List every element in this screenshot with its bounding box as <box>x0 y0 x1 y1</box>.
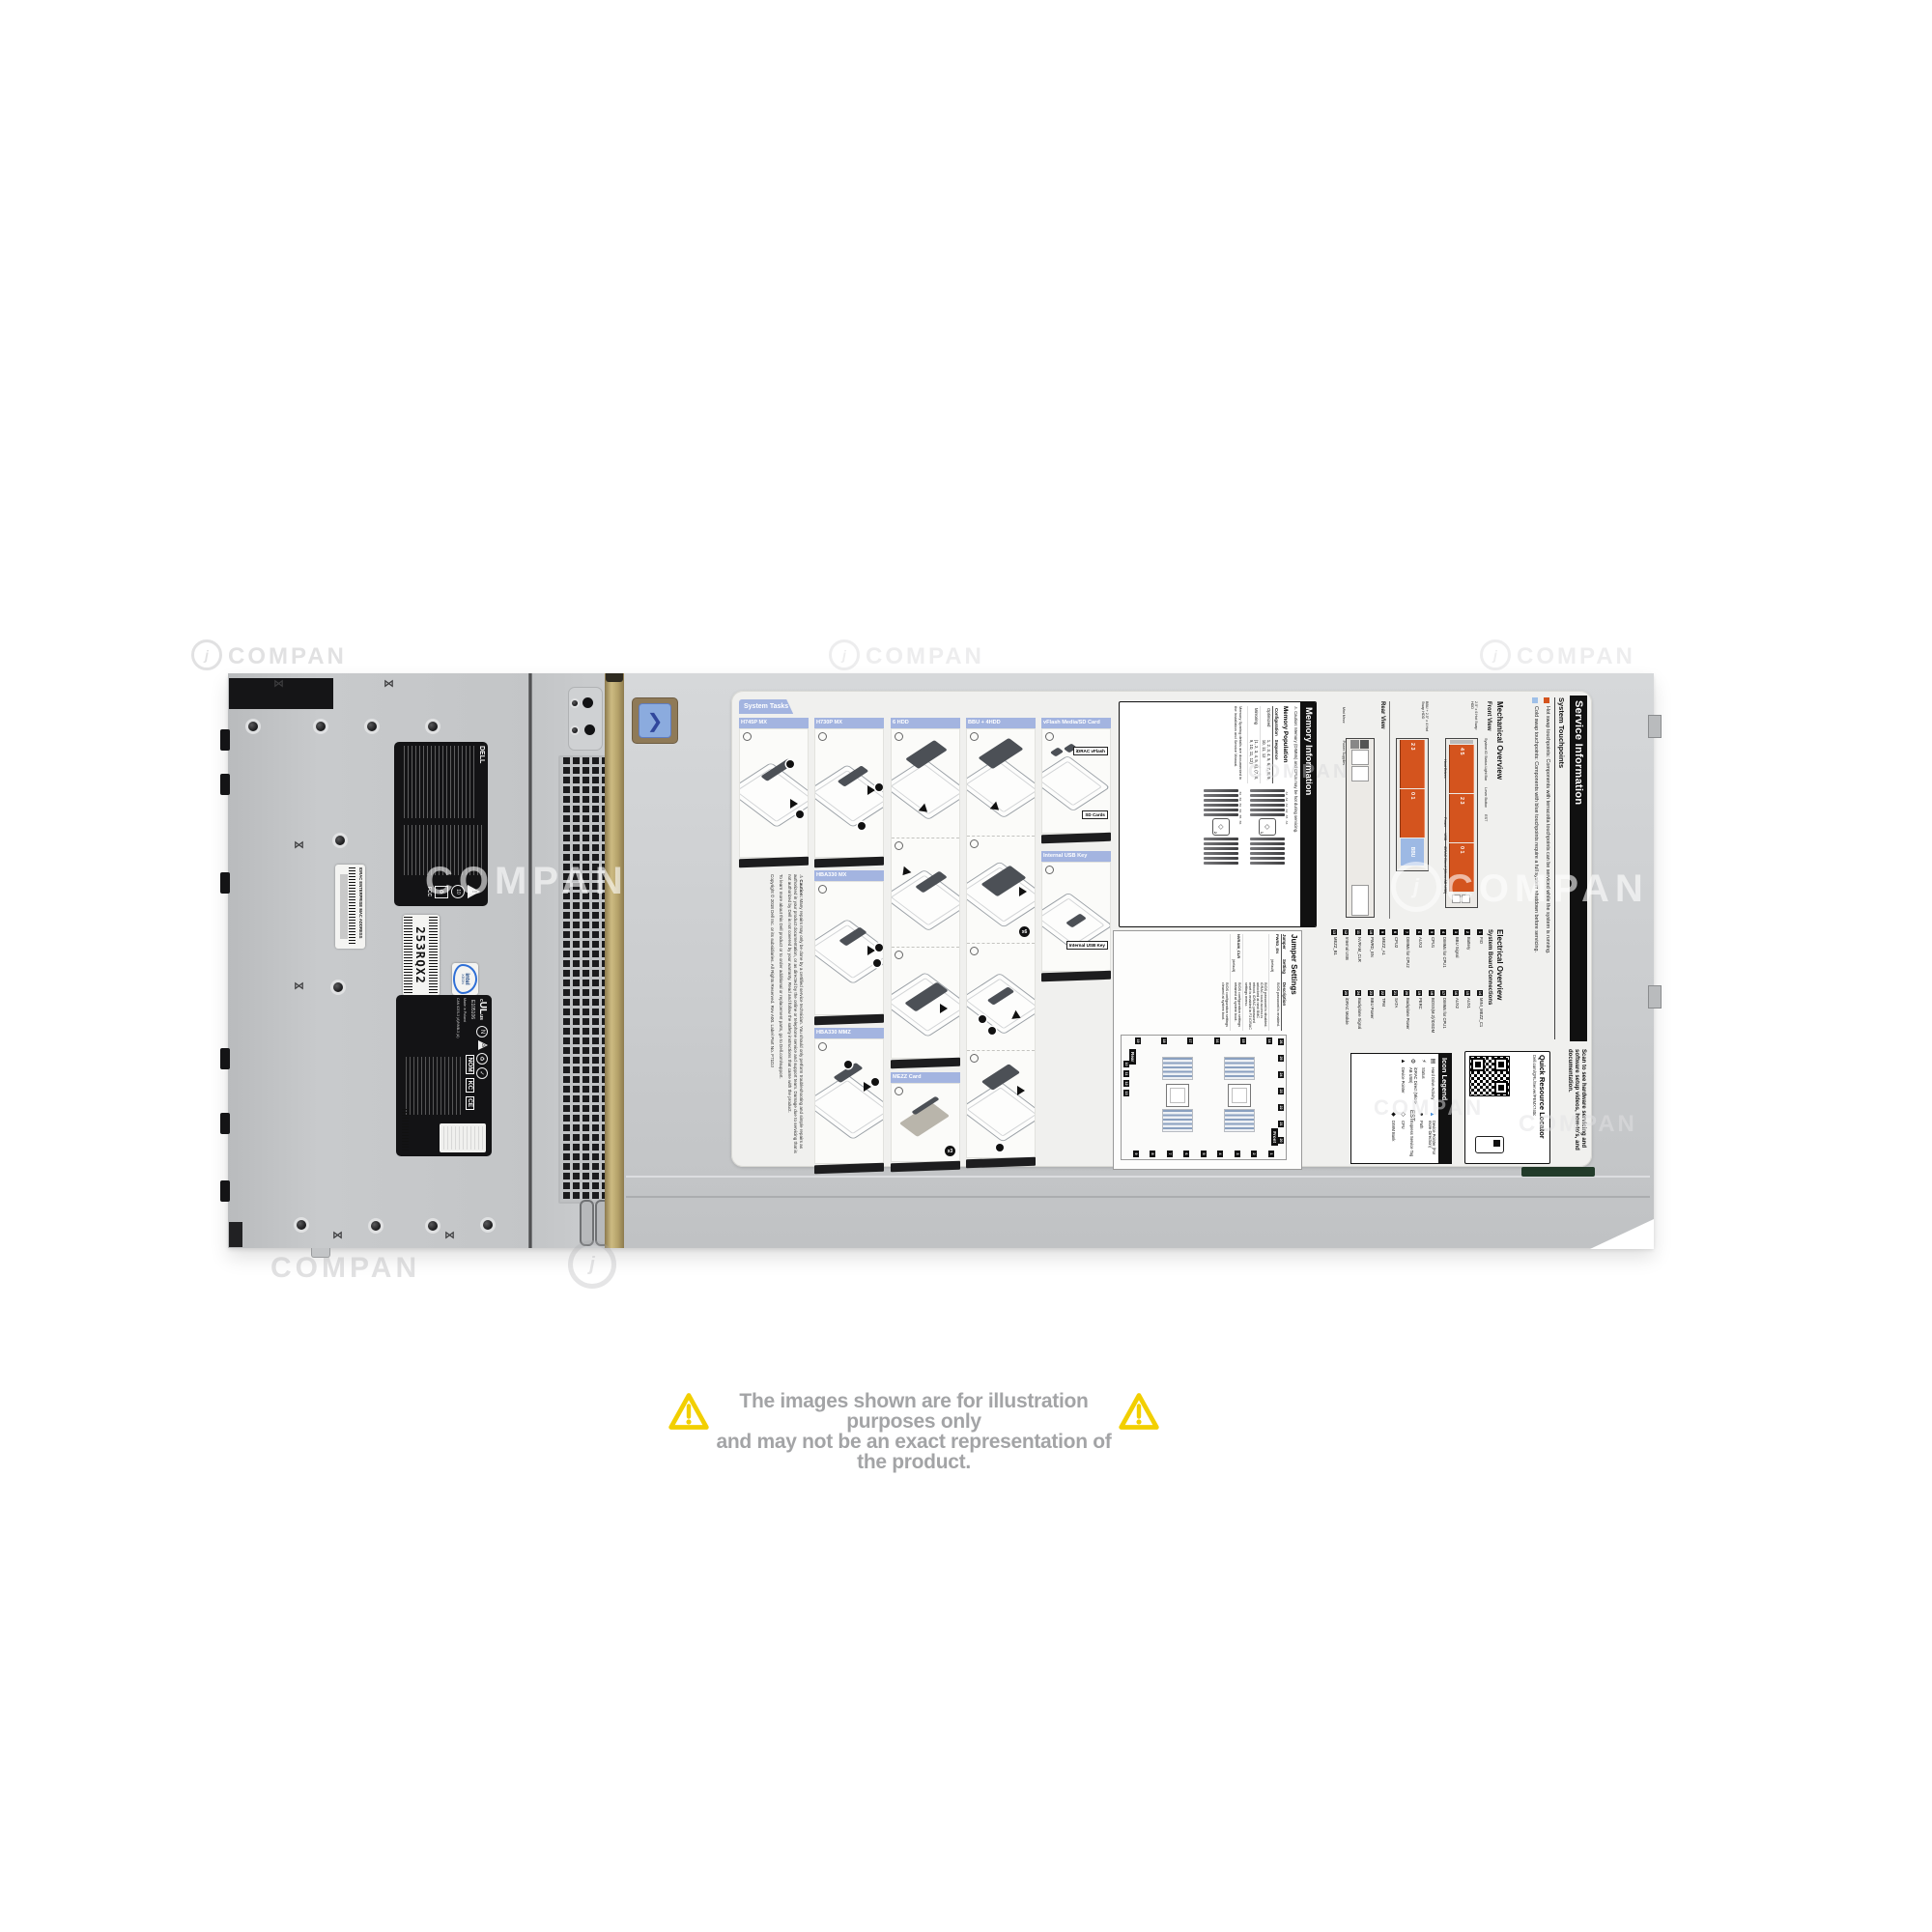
legend-icon: ● <box>1418 1110 1424 1119</box>
dimm-slot <box>1250 809 1285 811</box>
regulatory-label-1: DELL ! 10 ♻ FCC <box>394 742 488 906</box>
watermark-logo: j <box>191 639 222 670</box>
memory-information-section: Memory Information ⚠ Caution: Memory (DI… <box>1119 701 1317 927</box>
cert-circle-icon: ✓ <box>476 1067 488 1079</box>
connection-label: FIO <box>1479 937 1483 944</box>
stamped-vent-mark: ⋈ <box>384 679 394 689</box>
front-labels-mid: System ID Status Light BarLever ButtonES… <box>1484 738 1488 821</box>
drive-block: 0 1 <box>1449 843 1474 892</box>
emi-gasket-strip <box>605 673 624 1248</box>
col-jumper: Jumper <box>1282 934 1287 959</box>
warning-triangle-icon: ! <box>468 885 480 898</box>
dimm-slot-label: A4 <box>1285 809 1289 813</box>
memory-seq-mirroring: (1, 2, 3, 4, 5, 6), (7, 8, 9, 10, 11, 12… <box>1248 738 1261 783</box>
cover-groove <box>626 1196 1650 1198</box>
fcc-mark: FCC <box>426 887 432 896</box>
jumper-desc: BIOS password is enabled. <box>1270 982 1280 1031</box>
dimm-slot-label: B3 <box>1238 803 1242 808</box>
barcode <box>402 1109 409 1151</box>
board-callout: 17 <box>1187 1037 1193 1044</box>
dimm-slot-label: A3 <box>1285 803 1289 808</box>
legend-label: CPU <box>1400 1121 1404 1129</box>
rear-guide-tab <box>1648 715 1662 738</box>
diagram-label: System ID Status Light Bar <box>1484 738 1488 781</box>
dell-logo-text: DELL <box>478 746 485 763</box>
panel-illustration: x6 <box>966 728 1036 1158</box>
board-callout: 23 <box>1278 1088 1284 1094</box>
cold-swap-color-key <box>1532 697 1538 703</box>
panel-header-hba330mx: HBA330 MX <box>814 870 884 881</box>
quantity-badge: x3 <box>945 1146 955 1156</box>
dimm-slot <box>1250 799 1285 802</box>
watermark-text: COMPAN <box>866 643 984 670</box>
connection-number: 17 <box>1440 990 1446 996</box>
stamped-vent-mark: ⋈ <box>273 679 284 689</box>
panel-header-bbu4: BBU + 4HDD <box>966 718 1036 728</box>
barcode <box>429 917 438 994</box>
board-connection-item: 25 iDRAC Module <box>1343 990 1349 1047</box>
connection-number: 7 <box>1404 929 1409 935</box>
connection-label: AUX3 <box>1418 937 1422 948</box>
diagram-label: iDRAC Direct (Micro-AB USB) <box>1443 846 1447 894</box>
dimm-slot <box>1250 838 1285 840</box>
dimm-slot <box>1250 852 1285 855</box>
dimm-slot-label: A6 <box>1285 820 1289 825</box>
tasks-column-5: vFlash Media/SD Card iDRAC vFlash SD Car… <box>1041 718 1111 980</box>
panel-illustration <box>739 728 809 858</box>
legend-icon: ◇ <box>1399 1110 1405 1119</box>
screw <box>572 700 578 706</box>
panel-illustration <box>814 728 884 858</box>
icon-legend: Icon Legend ▤ Hard Drive Activity ⚡ Stat… <box>1350 1053 1452 1164</box>
dimm-slot-label: B1 <box>1238 791 1242 796</box>
tasks-column-3: 6 HDD <box>891 718 960 1171</box>
drive-block: 2 3 <box>1400 740 1425 788</box>
board-callout: 7 <box>1167 1151 1173 1157</box>
board-callout: 1 <box>1268 1151 1274 1157</box>
front1-caption: 2.5" x 6 Hot Swap HDD <box>1470 701 1478 734</box>
qrl-url: Dell.com/QRL/Server/PEMX740c <box>1531 1052 1538 1163</box>
warning-triangle-icon <box>1118 1391 1160 1432</box>
callout-idrac-vflash: iDRAC vFlash <box>1073 747 1108 755</box>
dimm-slot-label: B6 <box>1238 820 1242 825</box>
panel-header-mezz: MEZZ Card <box>891 1072 960 1083</box>
dimm-slot-label: A2 <box>1285 797 1289 802</box>
circle-10-icon: 10 <box>451 885 465 898</box>
diagram-label: Power <box>1443 817 1447 827</box>
service-tag-sticker: 253RQX2 <box>403 915 440 996</box>
mechanical-title: Mechanical Overview <box>1495 701 1504 925</box>
cold-swap-text: Cold swap touchpoints: Components with b… <box>1532 706 1539 952</box>
dimm-slot <box>1204 852 1238 855</box>
tasks-column-4: BBU + 4HDD x6 <box>966 718 1036 1167</box>
cpu2-marker: ◇2 <box>1212 818 1230 836</box>
connection-number: 23 <box>1368 990 1374 996</box>
connection-label: DIMMs for CPU1 <box>1442 998 1446 1029</box>
dimm-slot <box>1250 804 1285 807</box>
dimm-slot <box>1250 813 1285 816</box>
jumper-desc: BIOS configuration settings retained at … <box>1232 982 1241 1031</box>
panel-header-hba330mmz: HBA330 MMZ <box>814 1028 884 1038</box>
dimm-slot <box>1204 857 1238 860</box>
screw <box>428 722 438 731</box>
warning-triangle-icon <box>668 1391 710 1432</box>
page: { "watermark": { "text": "COMPAN", "logo… <box>0 0 1932 1932</box>
drive-block: 4 5 <box>1449 745 1474 793</box>
panel-illustration: iDRAC vFlash SD Cards <box>1041 728 1111 834</box>
chassis-hole <box>584 724 595 735</box>
emi-gasket-cap <box>606 673 623 682</box>
board-connection-item: 18 BOSS(M.2)/IDSDM <box>1429 990 1435 1047</box>
connection-label: DIMMs for CPU2 <box>1406 937 1409 968</box>
electrical-title: Electrical Overview <box>1495 929 1504 1047</box>
panel-illustration: Internal USB Key <box>1041 862 1111 972</box>
jumper-desc: BIOS password is disabled. iDRAC local a… <box>1244 982 1267 1031</box>
electrical-overview-section: Electrical Overview System Board Connect… <box>1311 929 1504 1047</box>
default-tag: (default) <box>1232 959 1236 972</box>
server-product-photo[interactable]: ⋈ ⋈ ⋈ ⋈ ⋈ ⋈ IDRAC ENTERPRISE MAC ADDRESS… <box>228 673 1654 1248</box>
edge-connector-nub <box>220 872 230 894</box>
dimm-slot <box>1250 862 1285 865</box>
connection-number: 20 <box>1404 990 1409 996</box>
connection-label: MEZZ_B1 <box>1332 937 1336 955</box>
vent-top-plate <box>568 687 603 751</box>
dimm-slot <box>1204 862 1238 865</box>
connection-label: PWRD_EN <box>1369 937 1373 957</box>
connection-label: AUX1 <box>1466 998 1470 1009</box>
legend-label: Device Pointer (For more Direction) <box>1427 1121 1435 1160</box>
connection-label: PERC <box>1418 998 1422 1009</box>
tasks-column-2: H730P MX HBA330 MX HBA330 MMZ <box>814 718 884 1173</box>
drive-block: 2 3 <box>1449 794 1474 842</box>
stamped-vent-mark: ⋈ <box>294 840 304 850</box>
board-callout: 26 <box>1278 1038 1284 1045</box>
board-callout: 12 <box>1123 1080 1129 1087</box>
stamped-vent-mark: ⋈ <box>444 1231 455 1240</box>
cover-release-latch[interactable]: ❯ <box>639 703 671 738</box>
jumper-name: NVRAM_CLR <box>1232 934 1241 959</box>
memory-col-config: Configuration <box>1273 706 1281 738</box>
dimm-slot-label: B2 <box>1238 797 1242 802</box>
board-connection-item: 23 BBU Power <box>1368 990 1374 1047</box>
memory-caution-text: Caution: Memory (DIMMs) and CPUs may be … <box>1293 711 1298 833</box>
connection-label: TPM <box>1381 998 1385 1007</box>
diagram-label: Mini Mezz <box>1342 707 1346 724</box>
chassis-hole <box>582 697 593 708</box>
connection-label: NVRAM_CLR <box>1357 937 1361 962</box>
learn-more-text: To learn more about this Dell product or… <box>779 874 784 1156</box>
disclaimer-line1: The images shown are for illustration pu… <box>716 1391 1112 1432</box>
board-callout: 6 <box>1184 1151 1190 1157</box>
memory-header: Memory Information <box>1300 702 1316 926</box>
board-connection-item: 12 Internal USB <box>1343 929 1349 986</box>
dimm-slot <box>1204 804 1238 807</box>
legend-icon: EST <box>1408 1110 1414 1119</box>
panel-header-6hdd: 6 HDD <box>891 718 960 728</box>
board-connection-item: 10 PWRD_EN <box>1368 929 1374 986</box>
panel-illustration: x3 <box>891 1083 960 1162</box>
stamped-vent-mark: ⋈ <box>294 981 304 991</box>
dimm-slot-label: A5 <box>1285 814 1289 819</box>
panel-illustration <box>814 881 884 1015</box>
weee-bin-icon: ♻ <box>435 886 448 898</box>
pcb-edge-strip <box>1521 1167 1595 1177</box>
board-connection-item: 20 Backplane Power <box>1404 990 1409 1047</box>
memory-config-optimized: Optimized <box>1261 706 1273 738</box>
col-setting: Setting <box>1282 959 1287 982</box>
board-callout: 3 <box>1235 1151 1240 1157</box>
connection-number: 5 <box>1429 929 1435 935</box>
dimm-slot-label: B5 <box>1238 814 1242 819</box>
board-callout: 25 <box>1278 1055 1284 1062</box>
diagram-label: Lever Button <box>1484 787 1488 808</box>
board-connection-item: 2 Battery <box>1464 929 1470 986</box>
board-connection-item: 11 NVRAM_CLR <box>1355 929 1361 986</box>
board-callout: 24 <box>1278 1071 1284 1078</box>
connection-number: 6 <box>1416 929 1422 935</box>
dimm-slot <box>1250 842 1285 845</box>
board-callout: 21 <box>1278 1121 1284 1127</box>
icon-legend-list: ▤ Hard Drive Activity ⚡ Status ⚙ iDRAC D… <box>1387 1054 1438 1163</box>
board-connection-item: 19 PERC <box>1416 990 1422 1047</box>
cert-circle-icon: ♻ <box>476 1053 488 1065</box>
connection-label: Backplane Signal <box>1357 998 1361 1029</box>
connection-label: Backplane Power <box>1406 998 1409 1030</box>
panel-header-h730p: H730P MX <box>814 718 884 728</box>
connection-label: BOSS(M.2)/IDSDM <box>1430 998 1434 1033</box>
rear-labels: Mini MezzPower Supplies <box>1342 707 1346 765</box>
watermark-text: COMPAN <box>228 643 347 670</box>
panel-endcap <box>1041 971 1111 982</box>
front2-caption: BBU + 2.5" x 4 Hot Swap HDD <box>1421 701 1429 734</box>
rotated-info-region: Service Information System Touchpoints H… <box>1118 696 1589 1164</box>
legend-label: Status <box>1421 1067 1425 1079</box>
dimm-slot <box>1204 842 1238 845</box>
qrl-scan-text: Scan to see hardware servicing and softw… <box>1565 1049 1586 1162</box>
board-connection-item: 4 DIMMs for CPU1 <box>1440 929 1446 986</box>
cover-groove <box>626 1176 1650 1178</box>
dimm-slot <box>1204 809 1238 811</box>
dimm-bank-b: B1B2B3B4B5B6 ◇2 <box>1204 789 1242 923</box>
legend-label: Hard Drive Activity <box>1431 1067 1435 1099</box>
callout-sd-cards: SD Cards <box>1082 810 1108 819</box>
hot-swap-color-key <box>1544 697 1549 703</box>
system-touchpoints-subheader: System Touchpoints <box>1557 697 1566 1041</box>
qr-code <box>1469 1056 1510 1096</box>
xeon-text: XEON <box>461 974 465 984</box>
dimm-slot-label: B4 <box>1238 809 1242 813</box>
panel-endcap <box>814 857 884 868</box>
panel-endcap <box>814 1163 884 1175</box>
screw <box>367 722 377 731</box>
cpu1-marker: ◇1 <box>1259 818 1276 836</box>
dimm-slot <box>1204 794 1238 797</box>
board-connections-list: 1 FIO 2 Battery 3 BBU Signal <box>1331 929 1483 1047</box>
connection-number: 12 <box>1343 929 1349 935</box>
idrac-mac-sticker: IDRAC ENTERPRISE MAC ADDRESS <box>335 865 365 949</box>
col-description: Description <box>1282 982 1287 1031</box>
board-callout: 9 <box>1133 1151 1139 1157</box>
board-callout: 8 <box>1151 1151 1156 1157</box>
memory-col-seq: Sequence <box>1273 738 1281 783</box>
icon-legend-item: ⚙ iDRAC Direct (Micro-AB USB) <box>1408 1057 1417 1107</box>
connection-number: 15 <box>1464 990 1470 996</box>
connection-number: 21 <box>1392 990 1398 996</box>
jumper-desc: BIOS configuration settings cleared at s… <box>1221 982 1229 1031</box>
connection-label: BBU Power <box>1369 998 1373 1019</box>
board-connection-item: 14 MINI_MEZZ_C1 <box>1477 990 1483 1047</box>
cert-mark: CE <box>466 1096 474 1110</box>
icon-legend-item: ⚡ Status <box>1420 1057 1426 1107</box>
connection-label: BBU Signal <box>1454 937 1458 957</box>
quick-resource-locator: Quick Resource Locator Dell.com/QRL/Serv… <box>1464 1051 1550 1164</box>
board-connection-item: 15 AUX1 <box>1464 990 1470 1047</box>
dimm-slot <box>1204 838 1238 840</box>
diagram-label: EST <box>1484 814 1488 821</box>
icon-legend-header: Icon Legend <box>1438 1054 1451 1163</box>
connection-label: DIMMs for CPU1 <box>1442 937 1446 968</box>
connection-label: Battery <box>1466 937 1470 950</box>
board-callout: 19 <box>1135 1037 1141 1044</box>
connection-number: 10 <box>1368 929 1374 935</box>
rear-guide-tab <box>1648 985 1662 1009</box>
board-callout: 18 <box>1161 1037 1167 1044</box>
screw <box>297 1220 306 1230</box>
connection-label: CPU2 <box>1393 937 1397 948</box>
legend-icon: ⚡ <box>1420 1057 1426 1065</box>
front-view-diagram-2: 2 30 1 BBU <box>1396 738 1429 871</box>
cert-triangle-icon: ♳ <box>478 1040 488 1050</box>
diagram-label: USB <box>1443 833 1447 840</box>
connection-label: Internal USB <box>1345 937 1349 960</box>
screw <box>333 982 343 992</box>
screw <box>371 1221 381 1231</box>
fine-print-block <box>403 1057 461 1115</box>
panel-header-vflash: vFlash Media/SD Card <box>1041 718 1111 728</box>
connection-number: 1 <box>1477 929 1483 935</box>
screw <box>483 1220 493 1230</box>
tasks-column-1: H745P MX ⚠ Caution: Many repairs may onl… <box>739 718 809 867</box>
front-view-diagram-1: 4 52 30 1 <box>1445 738 1478 908</box>
board-connection-item: 21 SATA <box>1392 990 1398 1047</box>
icon-legend-item: ▲ Device Pointer (For more Direction) <box>1427 1110 1435 1160</box>
connection-number: 22 <box>1379 990 1385 996</box>
dimm-bank-a: A1A2A3A4A5A6 ◇1 <box>1250 789 1289 923</box>
watermark-logo: j <box>1480 639 1511 670</box>
board-callout: 15 <box>1240 1037 1246 1044</box>
memory-population-title: Memory Population <box>1282 706 1289 783</box>
connection-label: CPU1 <box>1430 937 1434 948</box>
cert-circle-icon: N <box>476 1026 488 1037</box>
board-connection-item: 9 MEZZ_A1 <box>1379 929 1385 986</box>
icon-legend-item: ◇ CPU <box>1399 1110 1405 1160</box>
board-connection-item: 17 DIMMs for CPU1 <box>1440 990 1446 1047</box>
connection-number: 8 <box>1392 929 1398 935</box>
edge-connector-nub <box>220 774 230 795</box>
connection-number: 3 <box>1453 929 1459 935</box>
connection-number: 14 <box>1477 990 1483 996</box>
memory-sparing-note: Memory Sparing details are documented in… <box>1234 706 1243 783</box>
callout-internal-usb: Internal USB Key <box>1066 941 1108 950</box>
panel-endcap <box>739 857 809 868</box>
board-connection-item: 7 DIMMs for CPU2 <box>1404 929 1409 986</box>
edge-connector-nub <box>220 1113 230 1134</box>
board-connection-item: 16 AUX2 <box>1453 990 1459 1047</box>
edge-connector-nub <box>220 729 230 751</box>
board-callout: 16 <box>1214 1037 1220 1044</box>
caution-text-block: ⚠ Caution: Many repairs may only be done… <box>739 874 804 1156</box>
stamped-vent-mark: ⋈ <box>332 1231 343 1240</box>
hard-drives-label: Hard Drives <box>1443 759 1447 778</box>
board-callout: 5 <box>1201 1151 1207 1157</box>
barcode <box>404 917 412 994</box>
caution-body: Many repairs may only be done by a certi… <box>787 874 804 1153</box>
intel-xeon-badge: intel XEON <box>452 963 478 995</box>
intel-text: intel <box>464 973 469 984</box>
ul-mark: cULus <box>477 999 488 1020</box>
connection-label: SATA <box>1393 998 1397 1008</box>
connection-number: 4 <box>1440 929 1446 935</box>
icon-legend-item: ▤ Hard Drive Activity <box>1430 1057 1435 1107</box>
panel-header-usbkey: Internal USB Key <box>1041 851 1111 862</box>
panel-header-h745p: H745P MX <box>739 718 809 728</box>
cert-mark: KC <box>466 1078 474 1092</box>
board-connection-item: 1 FIO <box>1477 929 1483 986</box>
caution-icon: ⚠ <box>799 874 804 878</box>
system-tasks-tab: System Tasks <box>739 699 793 714</box>
board-connection-item: 6 AUX3 <box>1416 929 1422 986</box>
dimm-slot <box>1204 813 1238 816</box>
caution-title: Caution: <box>799 879 804 897</box>
board-callout: 22 <box>1278 1104 1284 1111</box>
connection-label: iDRAC Module <box>1345 998 1349 1025</box>
board-callout: 2 <box>1252 1151 1258 1157</box>
legend-label: Express Service Tag <box>1409 1121 1413 1156</box>
icon-legend-item: EST Express Service Tag <box>1408 1110 1414 1160</box>
connection-number: 16 <box>1453 990 1459 996</box>
board-connection-item: 13 MEZZ_B1 <box>1331 929 1337 986</box>
chassis-front-section: ⋈ ⋈ ⋈ ⋈ ⋈ ⋈ IDRAC ENTERPRISE MAC ADDRESS… <box>228 673 532 1248</box>
jumper-settings-section: Jumper Settings Jumper Setting Descripti… <box>1113 930 1302 1170</box>
cpu2-outline <box>1166 1084 1189 1107</box>
service-info-label: System Tasks H745P MX ⚠ Caution: Many re… <box>731 691 1592 1167</box>
edge-connector-nub <box>220 1048 230 1069</box>
board-rear-chip: Rear <box>1129 1049 1136 1065</box>
connection-number: 18 <box>1429 990 1435 996</box>
rear-view-label: Rear View <box>1379 701 1385 729</box>
cert-mark: NOM <box>466 1055 474 1074</box>
watermark-text: COMPAN <box>270 1252 420 1285</box>
disclaimer-line2: and may not be an exact representation o… <box>716 1432 1112 1472</box>
board-connection-item: 24 Backplane Signal <box>1355 990 1361 1047</box>
board-callout: 11 <box>1123 1070 1129 1077</box>
board-callout: 20 <box>1278 1137 1284 1144</box>
connection-label: MEZZ_A1 <box>1381 937 1385 955</box>
phone-scan-illustration <box>1475 1136 1504 1153</box>
screw <box>316 722 326 731</box>
legend-label: Path <box>1419 1121 1423 1128</box>
dimm-slot <box>1250 794 1285 797</box>
quantity-badge: x6 <box>1019 926 1030 937</box>
legend-icon: ⚙ <box>1409 1057 1415 1065</box>
screw <box>572 727 578 733</box>
fine-print-block <box>402 746 474 818</box>
legend-icon: ▲ <box>1399 1057 1405 1065</box>
board-connection-item: 3 BBU Signal <box>1453 929 1459 986</box>
panel-endcap <box>814 1014 884 1026</box>
legend-label: DIMM Bank <box>1391 1121 1395 1141</box>
dimm-slot <box>1250 857 1285 860</box>
